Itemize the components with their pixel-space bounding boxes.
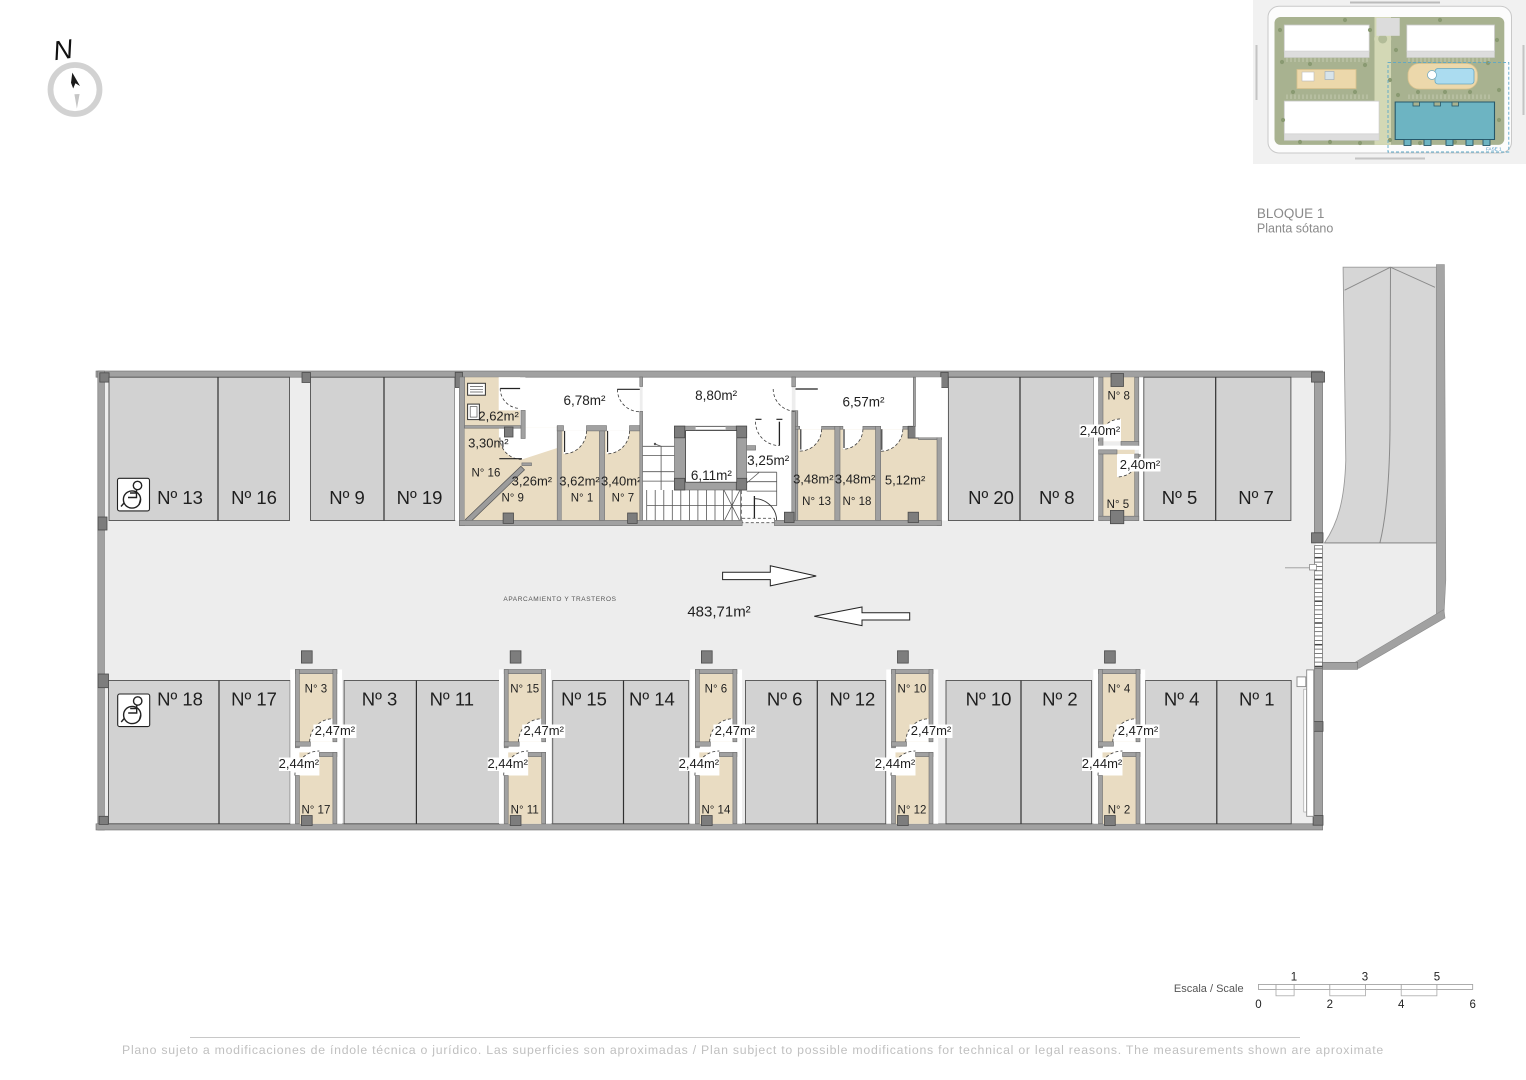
- svg-text:Nº 13: Nº 13: [157, 487, 203, 508]
- svg-text:Nº 19: Nº 19: [397, 487, 443, 508]
- svg-text:6,57m²: 6,57m²: [842, 395, 885, 410]
- svg-text:Nº 5: Nº 5: [1162, 487, 1198, 508]
- svg-text:BLOQUE 1: BLOQUE 1: [1257, 206, 1325, 221]
- svg-text:3: 3: [1362, 972, 1368, 984]
- svg-text:2,44m²: 2,44m²: [679, 756, 720, 771]
- svg-text:N° 11: N° 11: [511, 805, 539, 817]
- svg-text:2,44m²: 2,44m²: [487, 756, 528, 771]
- svg-text:4: 4: [1398, 999, 1405, 1011]
- svg-text:N° 18: N° 18: [843, 496, 872, 508]
- svg-text:6,78m²: 6,78m²: [563, 393, 606, 408]
- svg-text:N° 1: N° 1: [571, 493, 594, 505]
- svg-text:Nº 11: Nº 11: [430, 689, 474, 710]
- svg-text:0: 0: [1255, 999, 1261, 1011]
- svg-text:Nº 20: Nº 20: [968, 487, 1014, 508]
- svg-text:APARCAMIENTO Y TRASTEROS: APARCAMIENTO Y TRASTEROS: [503, 596, 616, 603]
- svg-text:Nº 2: Nº 2: [1042, 689, 1078, 710]
- svg-text:Nº 18: Nº 18: [157, 689, 203, 710]
- svg-text:N° 16: N° 16: [471, 468, 500, 480]
- svg-text:3,62m²: 3,62m²: [559, 474, 600, 489]
- svg-text:N° 10: N° 10: [898, 684, 927, 696]
- svg-text:6: 6: [1469, 999, 1475, 1011]
- svg-text:Nº 9: Nº 9: [329, 487, 365, 508]
- svg-text:Nº 6: Nº 6: [767, 689, 803, 710]
- svg-text:3,48m²: 3,48m²: [793, 472, 834, 487]
- svg-text:FASE 1: FASE 1: [1486, 147, 1502, 152]
- svg-text:2,40m²: 2,40m²: [1120, 457, 1161, 472]
- svg-text:2,47m²: 2,47m²: [315, 723, 356, 738]
- svg-text:3,48m²: 3,48m²: [835, 472, 876, 487]
- svg-text:N° 4: N° 4: [1108, 684, 1131, 696]
- svg-text:N° 14: N° 14: [701, 805, 730, 817]
- svg-text:Nº 3: Nº 3: [362, 689, 398, 710]
- svg-text:Nº 7: Nº 7: [1238, 487, 1274, 508]
- svg-text:N° 3: N° 3: [305, 684, 328, 696]
- svg-text:5,12m²: 5,12m²: [885, 473, 926, 488]
- svg-text:5: 5: [1434, 972, 1440, 984]
- svg-text:N° 2: N° 2: [1108, 805, 1131, 817]
- svg-text:N° 9: N° 9: [501, 493, 524, 505]
- svg-text:1: 1: [1291, 972, 1297, 984]
- svg-text:Nº 16: Nº 16: [231, 487, 277, 508]
- svg-text:N° 6: N° 6: [705, 684, 728, 696]
- svg-text:Nº 10: Nº 10: [966, 689, 1012, 710]
- svg-text:2,47m²: 2,47m²: [911, 723, 952, 738]
- svg-text:3,26m²: 3,26m²: [512, 474, 553, 489]
- svg-text:483,71m²: 483,71m²: [687, 604, 750, 621]
- svg-text:Planta sótano: Planta sótano: [1257, 222, 1333, 236]
- svg-text:2,44m²: 2,44m²: [875, 756, 916, 771]
- svg-text:2,62m²: 2,62m²: [478, 409, 519, 424]
- svg-text:Plano sujeto a modificaciones: Plano sujeto a modificaciones de índole …: [122, 1043, 1384, 1057]
- svg-text:Escala / Scale: Escala / Scale: [1174, 983, 1244, 995]
- svg-text:2,40m²: 2,40m²: [1080, 423, 1121, 438]
- svg-text:N° 12: N° 12: [898, 805, 927, 817]
- svg-text:2,47m²: 2,47m²: [715, 723, 756, 738]
- svg-text:2,44m²: 2,44m²: [1082, 756, 1123, 771]
- svg-text:3,25m²: 3,25m²: [747, 453, 790, 468]
- svg-text:N° 7: N° 7: [612, 493, 635, 505]
- svg-text:Nº 4: Nº 4: [1164, 689, 1200, 710]
- svg-text:2,44m²: 2,44m²: [279, 756, 320, 771]
- svg-text:Nº 12: Nº 12: [829, 689, 875, 710]
- svg-text:3,40m²: 3,40m²: [601, 474, 642, 489]
- svg-text:Nº 15: Nº 15: [561, 689, 607, 710]
- svg-text:N° 13: N° 13: [802, 496, 831, 508]
- svg-text:2,47m²: 2,47m²: [523, 723, 564, 738]
- svg-text:6,11m²: 6,11m²: [691, 468, 733, 483]
- svg-text:3,30m²: 3,30m²: [468, 436, 509, 451]
- svg-text:2,47m²: 2,47m²: [1118, 723, 1159, 738]
- svg-text:Nº 1: Nº 1: [1239, 689, 1275, 710]
- svg-text:2: 2: [1327, 999, 1333, 1011]
- svg-text:Nº 8: Nº 8: [1039, 487, 1075, 508]
- svg-text:N° 5: N° 5: [1107, 499, 1130, 511]
- svg-text:N° 15: N° 15: [510, 684, 539, 696]
- svg-text:N° 8: N° 8: [1107, 391, 1130, 403]
- svg-text:N° 17: N° 17: [301, 805, 330, 817]
- svg-text:8,80m²: 8,80m²: [695, 388, 738, 403]
- svg-text:Nº 14: Nº 14: [629, 689, 675, 710]
- svg-text:Nº 17: Nº 17: [231, 689, 277, 710]
